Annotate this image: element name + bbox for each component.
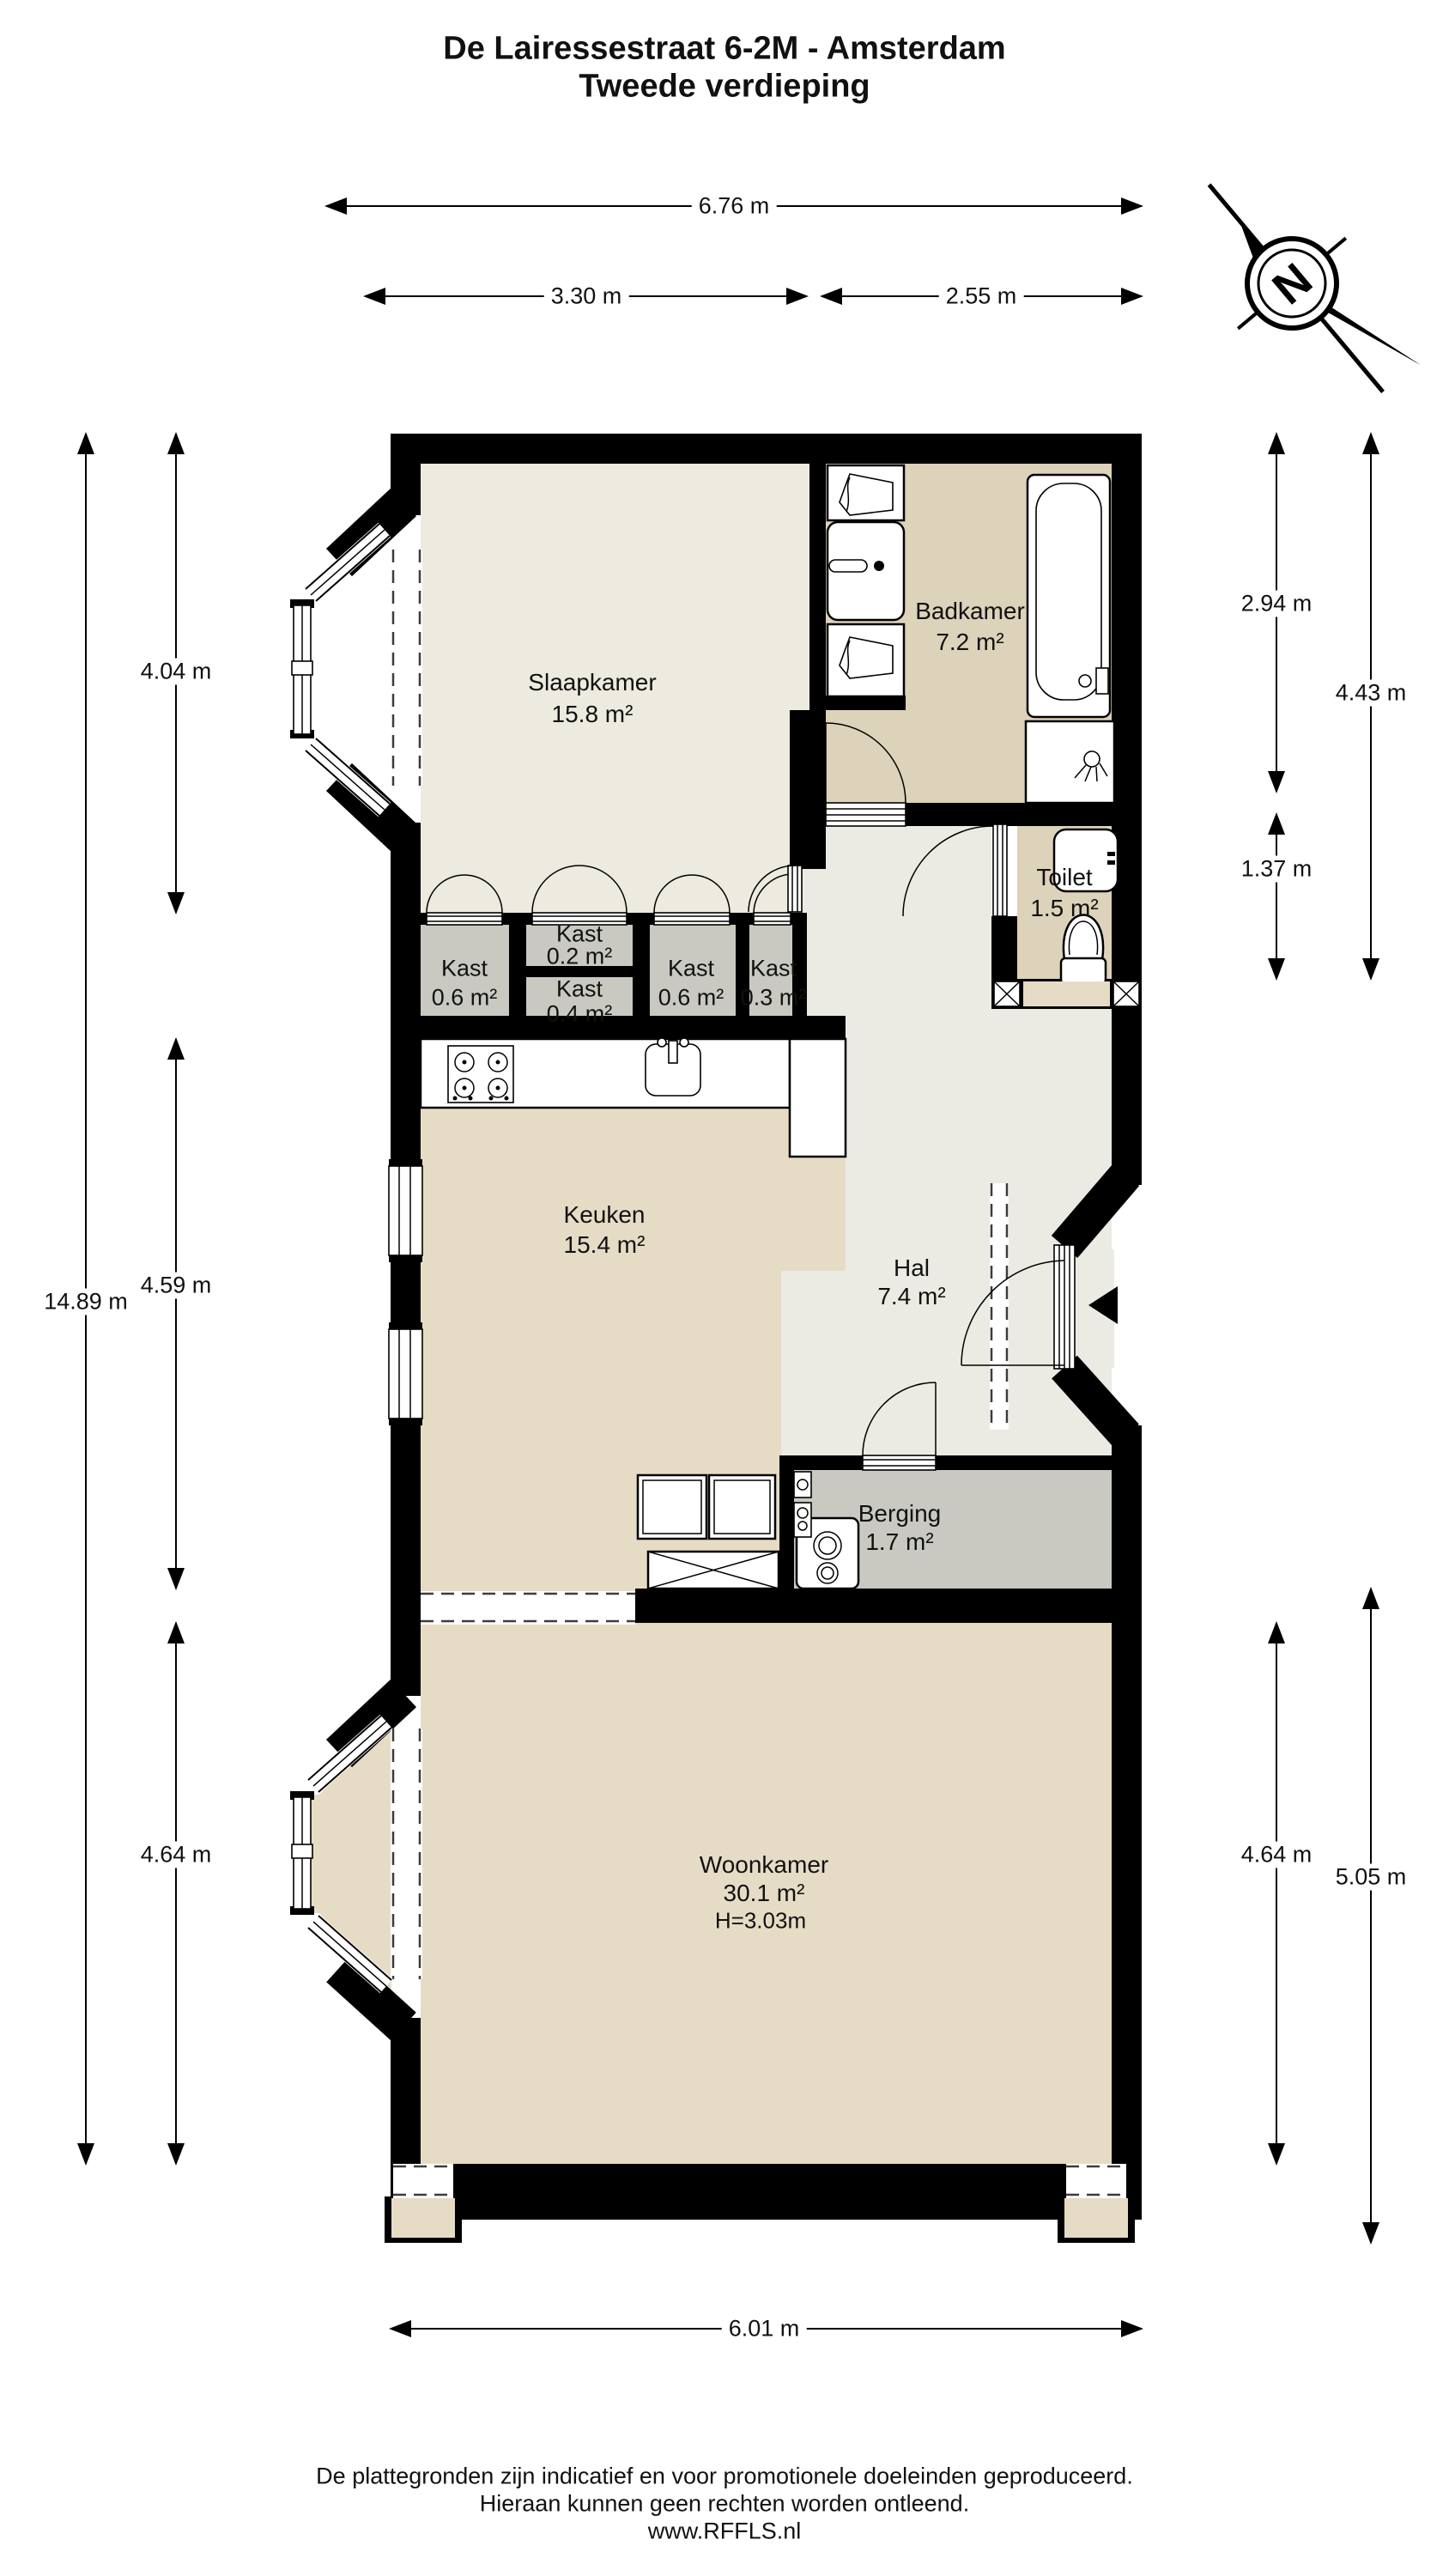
room-label-berging: Berging — [858, 1498, 942, 1529]
room-area-hal: 7.4 m² — [877, 1281, 945, 1312]
window — [389, 1159, 422, 1262]
crossed-box-icon — [648, 1552, 779, 1589]
page-subtitle: Tweede verdieping — [579, 69, 870, 106]
dim-right-upper-total: 4.43 m — [1329, 680, 1414, 707]
washbasin-icon — [828, 522, 904, 620]
room-label-badkamer: Badkamer — [915, 596, 1025, 627]
room-label-toilet: Toilet — [1036, 862, 1092, 893]
bathroom-cabinet-icon — [828, 624, 904, 696]
sink-icon — [646, 1038, 700, 1096]
dim-right-lower-total: 5.05 m — [1329, 1864, 1414, 1891]
floorplan-page: N De Lairessestraat 6-2M - Amsterdam Twe… — [0, 0, 1449, 2576]
room-area-kast3: 0.4 m² — [547, 999, 613, 1030]
kitchen-tall-unit — [790, 1039, 846, 1157]
room-area-badkamer: 7.2 m² — [936, 627, 1003, 658]
footer-disclaimer-1: De plattegronden zijn indicatief en voor… — [316, 2464, 1133, 2490]
room-area-berging: 1.7 m² — [865, 1527, 933, 1558]
room-area-toilet: 1.5 m² — [1030, 893, 1098, 924]
dim-woonkamer-height-right: 4.64 m — [1234, 1842, 1319, 1868]
dim-badkamer-height: 2.94 m — [1234, 591, 1319, 617]
compass-icon: N — [1155, 139, 1440, 440]
room-area-kast4: 0.6 m² — [658, 983, 724, 1013]
dim-width-left: 3.30 m — [544, 283, 629, 310]
dim-bottom-width: 6.01 m — [722, 2316, 807, 2342]
page-title: De Lairessestraat 6-2M - Amsterdam — [443, 31, 1005, 68]
dim-woonkamer-height-left: 4.64 m — [134, 1842, 219, 1868]
toilet-icon — [1061, 915, 1106, 985]
room-area-kast1: 0.6 m² — [432, 983, 498, 1013]
appliance-icon — [638, 1475, 775, 1539]
meter-icon — [794, 1472, 811, 1537]
room-height-woonkamer: H=3.03m — [715, 1906, 806, 1935]
dim-total-height: 14.89 m — [37, 1289, 135, 1315]
room-area-slaapkamer: 15.8 m² — [552, 699, 634, 730]
window — [389, 1322, 422, 1425]
room-label-hal: Hal — [894, 1253, 930, 1284]
room-area-kast2: 0.2 m² — [547, 942, 613, 972]
bathroom-cabinet-icon — [828, 465, 904, 520]
room-label-woonkamer: Woonkamer — [700, 1850, 828, 1880]
footer-disclaimer-2: Hieraan kunnen geen rechten worden ontle… — [480, 2491, 969, 2518]
room-label-kast5: Kast — [750, 954, 797, 984]
bathtub-icon — [1028, 475, 1110, 717]
room-label-kast1: Kast — [441, 954, 488, 984]
dim-width-right: 2.55 m — [939, 283, 1024, 310]
footer-website: www.RFFLS.nl — [648, 2518, 802, 2545]
shower-icon — [1026, 721, 1114, 803]
window — [290, 599, 314, 738]
dim-toilet-height: 1.37 m — [1234, 856, 1319, 883]
window — [290, 1791, 314, 1915]
dim-keuken-height: 4.59 m — [134, 1273, 219, 1299]
room-area-kast5: 0.3 m² — [741, 983, 807, 1013]
room-label-kast4: Kast — [668, 954, 714, 984]
dim-total-width: 6.76 m — [692, 193, 777, 220]
room-label-slaapkamer: Slaapkamer — [528, 667, 656, 698]
room-area-keuken: 15.4 m² — [564, 1230, 646, 1261]
column-markers — [994, 981, 1139, 1006]
dim-slaapkamer-height: 4.04 m — [134, 659, 219, 685]
room-area-woonkamer: 30.1 m² — [724, 1878, 805, 1909]
stove-icon — [448, 1046, 513, 1103]
room-label-keuken: Keuken — [564, 1200, 646, 1230]
